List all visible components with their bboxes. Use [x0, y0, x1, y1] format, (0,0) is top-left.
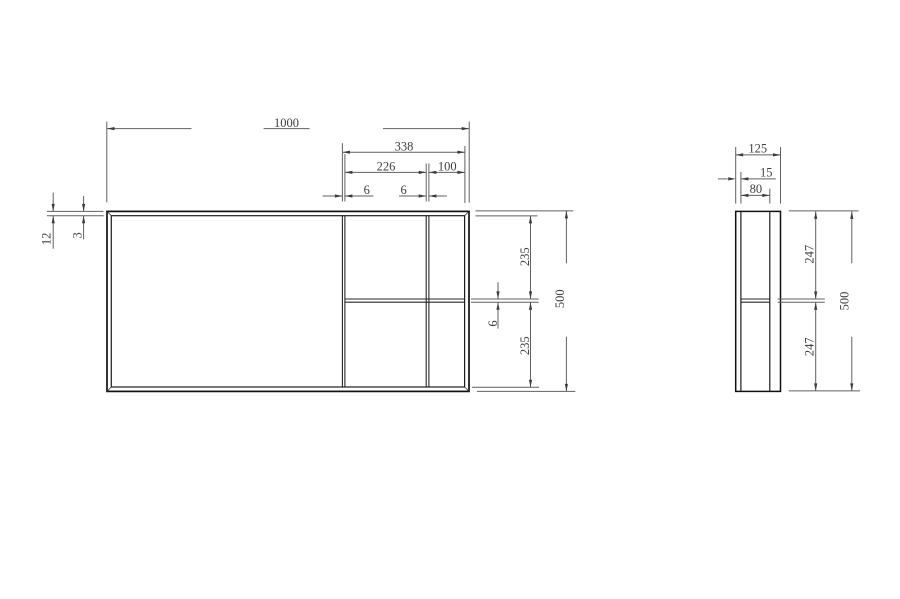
svg-text:15: 15	[760, 166, 773, 180]
svg-text:80: 80	[750, 182, 763, 196]
svg-text:235: 235	[518, 336, 532, 355]
svg-text:226: 226	[377, 160, 396, 174]
svg-text:338: 338	[395, 140, 414, 154]
svg-text:247: 247	[803, 245, 817, 264]
svg-text:235: 235	[518, 247, 532, 266]
svg-text:6: 6	[486, 320, 500, 326]
svg-text:3: 3	[71, 232, 85, 238]
svg-text:125: 125	[748, 141, 767, 155]
svg-text:1000: 1000	[274, 116, 299, 130]
svg-text:100: 100	[438, 160, 457, 174]
svg-text:500: 500	[553, 289, 567, 308]
svg-text:247: 247	[803, 337, 817, 356]
svg-text:6: 6	[364, 183, 370, 197]
svg-text:500: 500	[837, 292, 851, 311]
svg-text:12: 12	[40, 233, 54, 246]
svg-text:6: 6	[400, 183, 406, 197]
